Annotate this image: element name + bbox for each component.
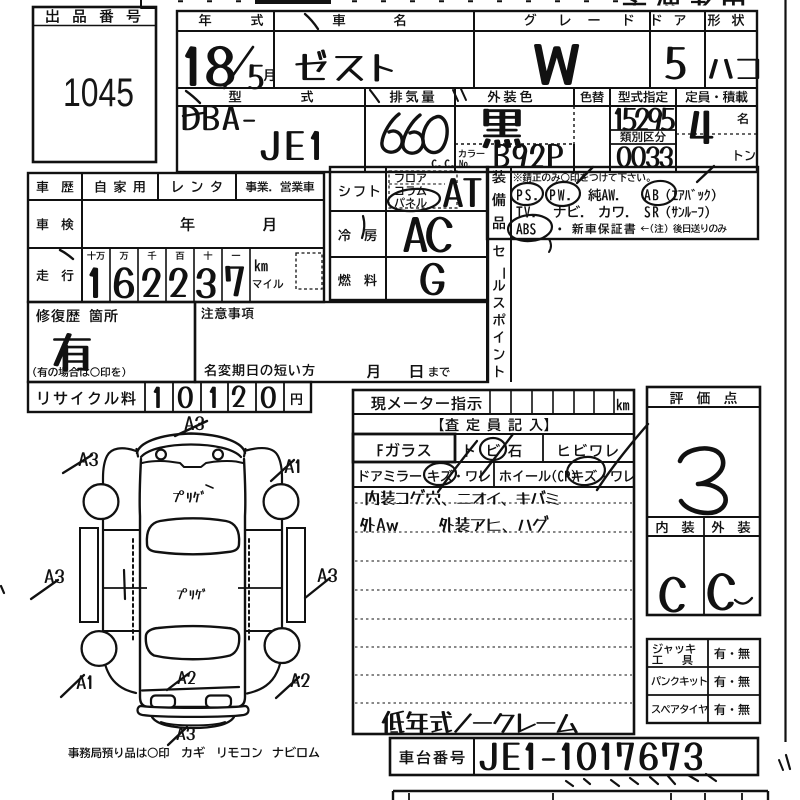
- svg-text:1045: 1045: [63, 71, 134, 115]
